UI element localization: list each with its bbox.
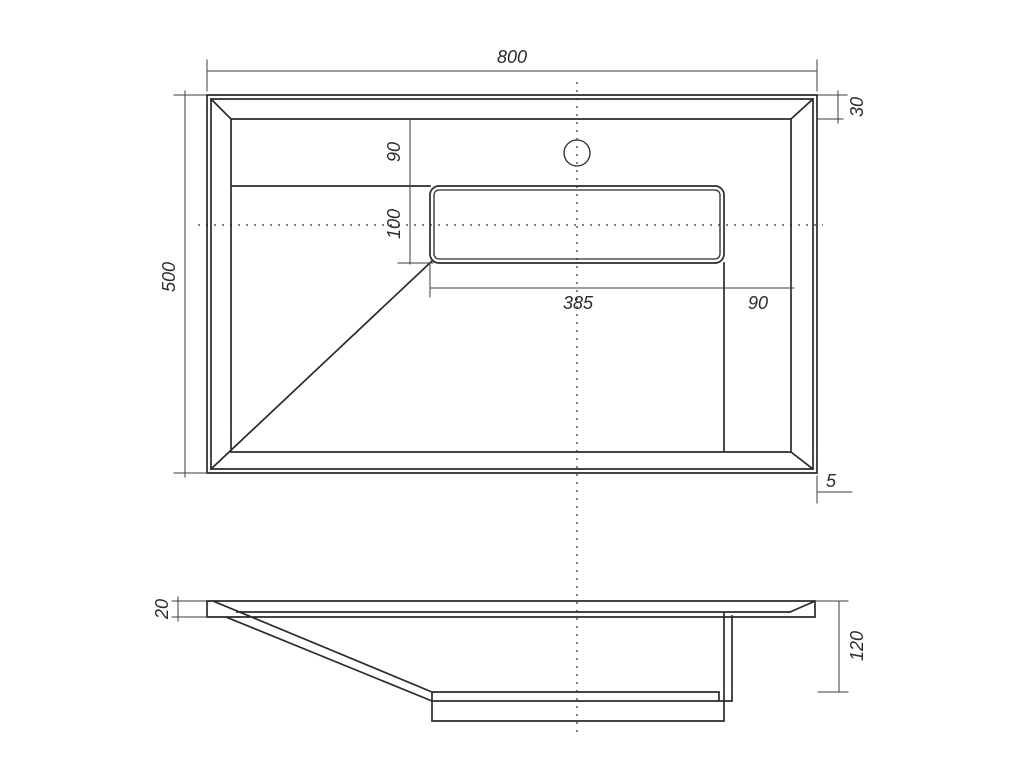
dim-deck-thickness: 20 — [152, 597, 207, 621]
basin-opening — [211, 119, 791, 469]
dim-overall-depth: 500 — [159, 91, 207, 477]
dim-deck-and-slot-depth: 90 100 — [384, 119, 433, 297]
technical-drawing-page: 800 30 500 90 100 385 90 5 — [0, 0, 1024, 768]
top-view-outline — [207, 95, 817, 473]
side-view: 20 120 — [152, 597, 867, 721]
side-profile — [207, 601, 815, 721]
dim-overall-width: 800 — [207, 47, 817, 91]
dim-label-5: 5 — [826, 471, 837, 491]
dim-rim-width: 30 — [818, 91, 867, 123]
dim-label-20: 20 — [152, 599, 172, 620]
dim-label-100: 100 — [384, 209, 404, 239]
drain-slot-inner — [434, 190, 720, 259]
dim-label-500: 500 — [159, 262, 179, 292]
dim-label-385: 385 — [563, 293, 594, 313]
dim-label-800: 800 — [497, 47, 527, 67]
dim-label-30: 30 — [847, 97, 867, 117]
dim-label-90-horizontal: 90 — [748, 293, 768, 313]
dim-bowl-height: 120 — [815, 601, 867, 692]
drawing-canvas: 800 30 500 90 100 385 90 5 — [0, 0, 1024, 768]
dim-rim-edge: 5 — [817, 471, 852, 503]
dim-label-90-vertical: 90 — [384, 142, 404, 162]
dim-slot-width: 385 90 — [430, 288, 794, 313]
dim-label-120: 120 — [847, 631, 867, 661]
